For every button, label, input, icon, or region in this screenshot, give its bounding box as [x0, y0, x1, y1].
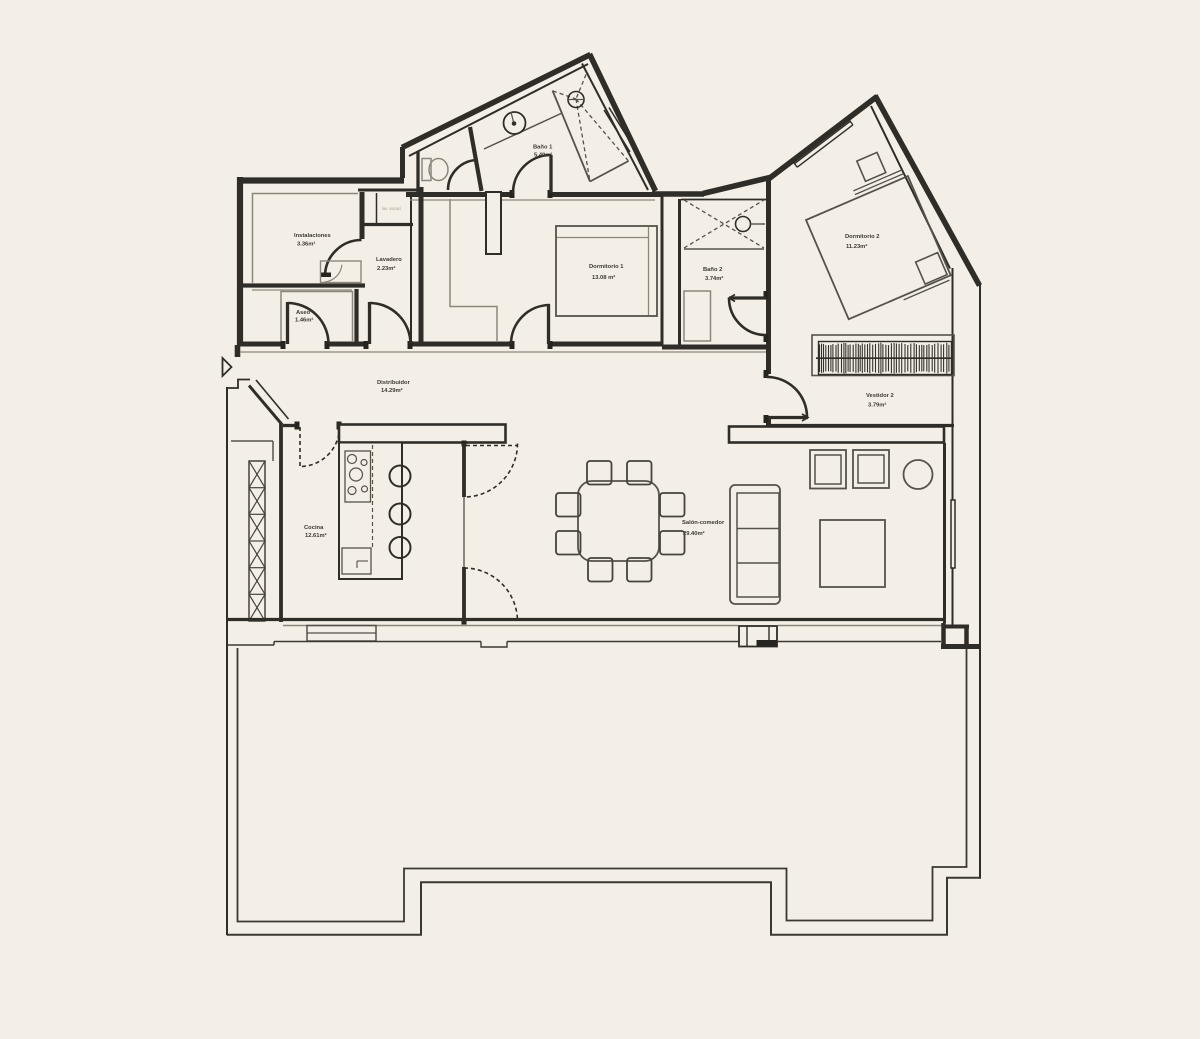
svg-text:Baño 1: Baño 1: [533, 145, 553, 151]
svg-text:lav. secad.: lav. secad.: [382, 206, 402, 211]
svg-text:12.61m²: 12.61m²: [305, 532, 327, 539]
svg-text:2.23m²: 2.23m²: [377, 265, 395, 272]
svg-text:5.40m²: 5.40m²: [534, 152, 552, 159]
svg-text:11.23m²: 11.23m²: [846, 243, 867, 250]
svg-text:Vestidor 2: Vestidor 2: [866, 393, 894, 399]
svg-text:Lavadero: Lavadero: [376, 257, 402, 263]
svg-text:Baño 2: Baño 2: [703, 267, 722, 273]
svg-text:Distribuidor: Distribuidor: [377, 380, 411, 386]
svg-text:3.36m²: 3.36m²: [297, 241, 315, 248]
svg-text:3.74m²: 3.74m²: [705, 275, 723, 282]
svg-text:29.40m²: 29.40m²: [683, 530, 705, 537]
svg-text:Instalaciones: Instalaciones: [294, 233, 331, 239]
svg-text:14.29m²: 14.29m²: [381, 387, 403, 394]
svg-text:3.79m²: 3.79m²: [868, 402, 886, 409]
svg-text:Salón-comedor: Salón-comedor: [682, 520, 725, 526]
svg-text:Dormitorio 2: Dormitorio 2: [845, 234, 879, 240]
svg-text:Dormitorio 1: Dormitorio 1: [589, 264, 624, 270]
svg-text:13.08 m²: 13.08 m²: [592, 274, 615, 281]
svg-text:Aseo: Aseo: [296, 310, 311, 316]
svg-text:Cocina: Cocina: [304, 525, 324, 531]
svg-text:1.46m²: 1.46m²: [295, 317, 313, 324]
